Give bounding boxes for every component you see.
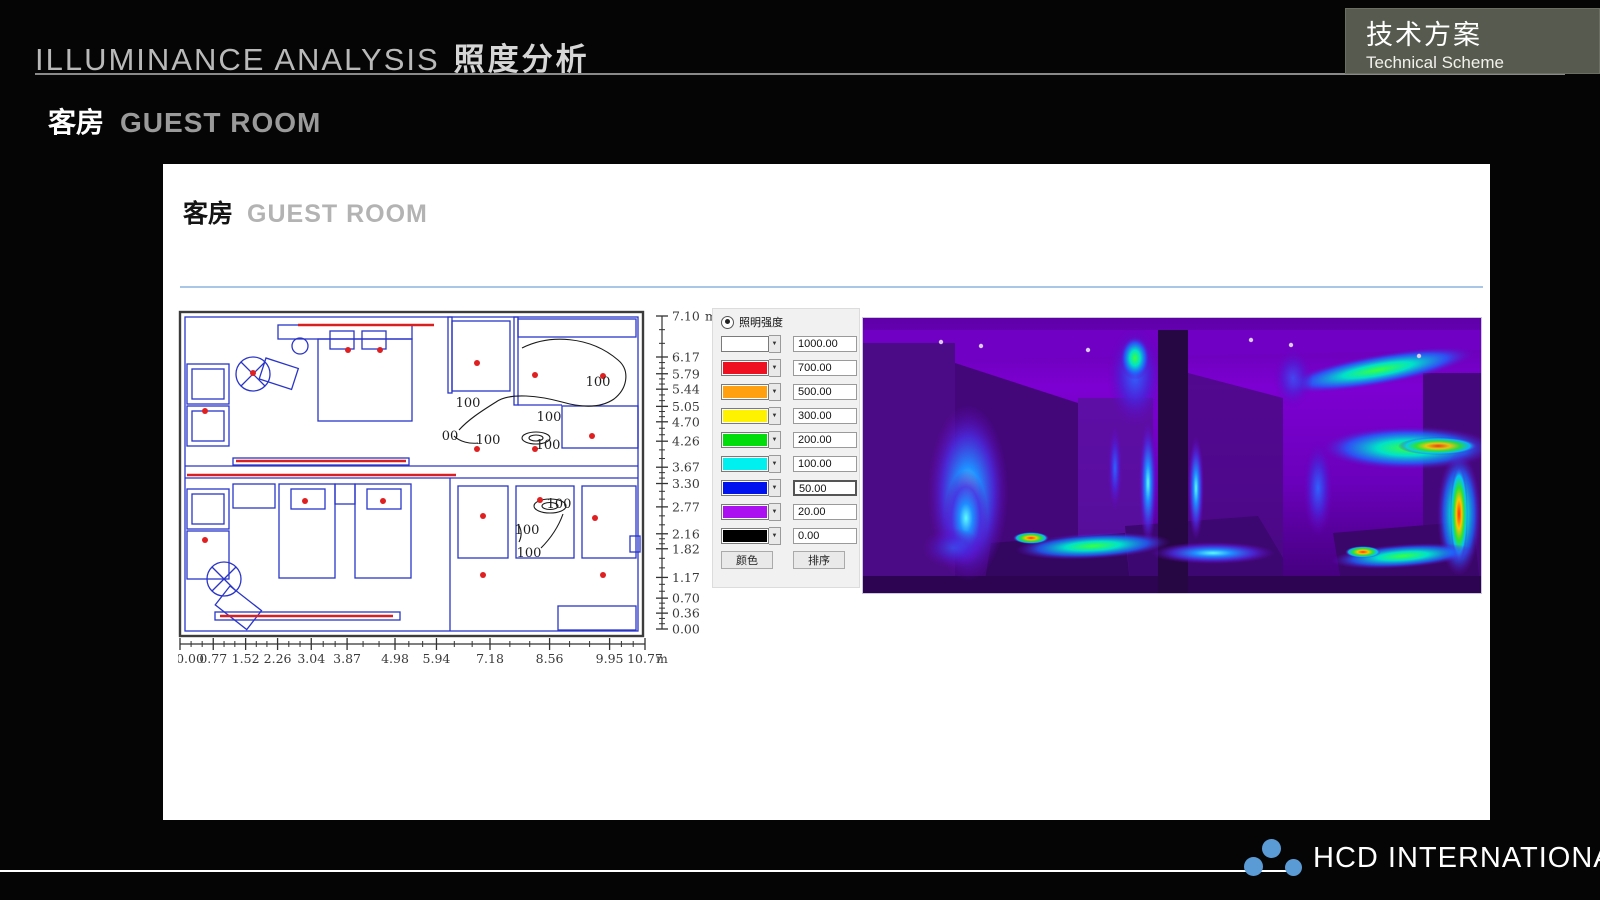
svg-text:1.82: 1.82 bbox=[672, 541, 700, 556]
dropdown-arrow-icon[interactable]: ▼ bbox=[769, 335, 781, 353]
svg-text:5.79: 5.79 bbox=[672, 366, 700, 381]
svg-text:3.04: 3.04 bbox=[297, 651, 325, 666]
legend-row: ▼200.00 bbox=[721, 431, 859, 449]
x-axis-ruler: 0.000.771.522.263.043.874.985.947.188.56… bbox=[178, 638, 668, 666]
svg-text:4.70: 4.70 bbox=[672, 414, 700, 429]
svg-text:5.94: 5.94 bbox=[423, 651, 451, 666]
panel-divider bbox=[180, 286, 1483, 288]
svg-text:3.87: 3.87 bbox=[333, 651, 361, 666]
dropdown-arrow-icon[interactable]: ▼ bbox=[769, 383, 781, 401]
svg-text:3.67: 3.67 bbox=[672, 460, 700, 475]
svg-text:7.10: 7.10 bbox=[672, 309, 700, 324]
page-title-en: ILLUMINANCE ANALYSIS bbox=[35, 42, 440, 77]
color-swatch[interactable] bbox=[721, 528, 769, 544]
legend-value-input[interactable]: 20.00 bbox=[793, 504, 857, 520]
legend-value-input[interactable]: 0.00 bbox=[793, 528, 857, 544]
svg-text:0.36: 0.36 bbox=[672, 606, 700, 621]
scheme-box: 技术方案 Technical Scheme bbox=[1345, 8, 1600, 74]
panel-title: 客房GUEST ROOM bbox=[183, 194, 428, 230]
svg-text:m: m bbox=[656, 651, 668, 666]
legend-value-input[interactable]: 500.00 bbox=[793, 384, 857, 400]
color-swatch[interactable] bbox=[721, 456, 769, 472]
slide: ILLUMINANCE ANALYSIS照度分析 技术方案 Technical … bbox=[0, 0, 1600, 900]
svg-text:100: 100 bbox=[537, 410, 562, 425]
legend-value-input[interactable]: 100.00 bbox=[793, 456, 857, 472]
svg-text:100: 100 bbox=[586, 375, 611, 390]
svg-text:1.17: 1.17 bbox=[672, 570, 700, 585]
color-swatch[interactable] bbox=[721, 480, 769, 496]
color-swatch[interactable] bbox=[721, 504, 769, 520]
legend-value-input[interactable]: 1000.00 bbox=[793, 336, 857, 352]
legend-row: ▼0.00 bbox=[721, 527, 859, 545]
slide-subtitle-zh: 客房 bbox=[48, 107, 104, 138]
scheme-title-zh: 技术方案 bbox=[1366, 13, 1599, 52]
svg-text:100: 100 bbox=[517, 546, 542, 561]
svg-text:1.52: 1.52 bbox=[232, 651, 260, 666]
dropdown-arrow-icon[interactable]: ▼ bbox=[769, 527, 781, 545]
brand-name: HCD INTERNATIONAL bbox=[1313, 842, 1600, 875]
svg-text:6.17: 6.17 bbox=[672, 349, 700, 364]
legend-panel: 照明强度 ▼1000.00▼700.00▼500.00▼300.00▼200.0… bbox=[712, 308, 860, 588]
legend-row: ▼50.00 bbox=[721, 479, 859, 497]
svg-text:100: 100 bbox=[456, 396, 481, 411]
page-title-zh: 照度分析 bbox=[454, 42, 590, 77]
legend-value-input[interactable]: 700.00 bbox=[793, 360, 857, 376]
svg-text:0.00: 0.00 bbox=[672, 622, 700, 637]
dropdown-arrow-icon[interactable]: ▼ bbox=[769, 455, 781, 473]
svg-text:8.56: 8.56 bbox=[536, 651, 564, 666]
footer-line bbox=[0, 870, 1292, 872]
sort-button[interactable]: 排序 bbox=[793, 551, 845, 569]
color-swatch[interactable] bbox=[721, 408, 769, 424]
legend-row: ▼1000.00 bbox=[721, 335, 859, 353]
dropdown-arrow-icon[interactable]: ▼ bbox=[769, 479, 781, 497]
color-swatch[interactable] bbox=[721, 336, 769, 352]
svg-text:4.98: 4.98 bbox=[381, 651, 409, 666]
svg-text:2.16: 2.16 bbox=[672, 526, 700, 541]
svg-text:3.30: 3.30 bbox=[672, 476, 700, 491]
color-swatch[interactable] bbox=[721, 384, 769, 400]
color-swatch[interactable] bbox=[721, 432, 769, 448]
slide-subtitle-en: GUEST ROOM bbox=[120, 107, 321, 138]
svg-text:4.26: 4.26 bbox=[672, 434, 700, 449]
logo-dot-right bbox=[1285, 859, 1302, 876]
svg-text:2.77: 2.77 bbox=[672, 499, 700, 514]
header-divider bbox=[35, 73, 1565, 75]
svg-text:100: 100 bbox=[515, 523, 540, 538]
dropdown-arrow-icon[interactable]: ▼ bbox=[769, 359, 781, 377]
false-color-rendering bbox=[862, 317, 1482, 594]
svg-text:5.05: 5.05 bbox=[672, 399, 700, 414]
svg-text:9.95: 9.95 bbox=[596, 651, 624, 666]
illuminance-radio[interactable] bbox=[721, 316, 734, 329]
panel-title-zh: 客房 bbox=[183, 200, 233, 228]
color-button[interactable]: 颜色 bbox=[721, 551, 773, 569]
logo-dot-left bbox=[1244, 857, 1263, 876]
scheme-title-en: Technical Scheme bbox=[1366, 53, 1599, 73]
color-swatch[interactable] bbox=[721, 360, 769, 376]
svg-text:0.77: 0.77 bbox=[199, 651, 227, 666]
legend-rows: ▼1000.00▼700.00▼500.00▼300.00▼200.00▼100… bbox=[721, 335, 859, 545]
dropdown-arrow-icon[interactable]: ▼ bbox=[769, 503, 781, 521]
legend-row: ▼700.00 bbox=[721, 359, 859, 377]
slide-subtitle: 客房GUEST ROOM bbox=[48, 101, 321, 141]
legend-title: 照明强度 bbox=[739, 314, 783, 330]
svg-text:100: 100 bbox=[536, 438, 561, 453]
dropdown-arrow-icon[interactable]: ▼ bbox=[769, 431, 781, 449]
plan-red-strips bbox=[187, 325, 456, 616]
svg-text:00: 00 bbox=[442, 429, 459, 444]
legend-value-input[interactable]: 50.00 bbox=[793, 480, 857, 496]
legend-value-input[interactable]: 300.00 bbox=[793, 408, 857, 424]
svg-text:7.18: 7.18 bbox=[476, 651, 504, 666]
legend-row: ▼500.00 bbox=[721, 383, 859, 401]
svg-text:100: 100 bbox=[476, 433, 501, 448]
svg-text:5.44: 5.44 bbox=[672, 382, 700, 397]
svg-text:0.70: 0.70 bbox=[672, 591, 700, 606]
floor-plan: 0.000.771.522.263.043.874.985.947.188.56… bbox=[178, 306, 718, 668]
dropdown-arrow-icon[interactable]: ▼ bbox=[769, 407, 781, 425]
svg-text:100: 100 bbox=[547, 497, 572, 512]
legend-row: ▼300.00 bbox=[721, 407, 859, 425]
panel-title-en: GUEST ROOM bbox=[247, 200, 428, 228]
legend-row: ▼20.00 bbox=[721, 503, 859, 521]
logo-dot-top bbox=[1262, 839, 1281, 858]
contour-labels: 10010010000100100100100100 bbox=[442, 375, 611, 561]
legend-row: ▼100.00 bbox=[721, 455, 859, 473]
y-axis-ruler: 7.106.175.795.445.054.704.263.673.302.77… bbox=[656, 309, 717, 637]
legend-value-input[interactable]: 200.00 bbox=[793, 432, 857, 448]
svg-text:2.26: 2.26 bbox=[264, 651, 292, 666]
